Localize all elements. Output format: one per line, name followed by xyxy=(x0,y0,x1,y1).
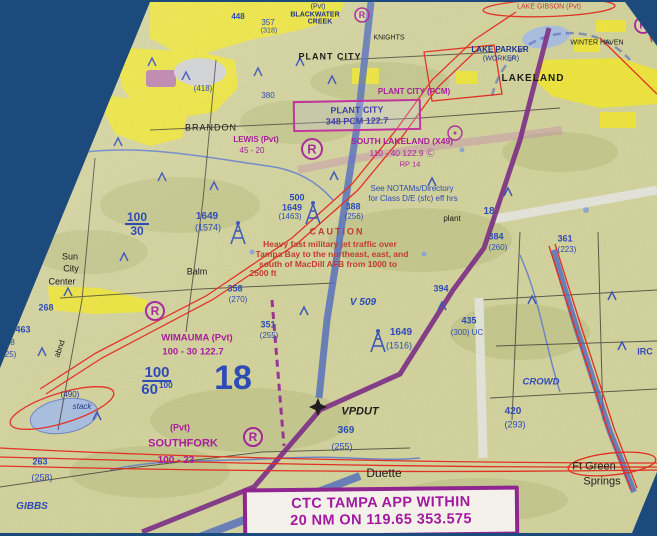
ctc-line-1: CTC TAMPA APP WITHIN xyxy=(291,494,470,513)
town-plant-small: plant xyxy=(443,215,460,223)
obstacle-388-agl: (256) xyxy=(345,213,364,221)
mef-100-60: 10060100 xyxy=(141,365,172,397)
town-duette: Duette xyxy=(366,467,401,479)
obstacle-384-agl: (260) xyxy=(489,244,508,252)
obstacle-420: 420 xyxy=(505,407,522,417)
lewis-data: 45 - 20 xyxy=(240,147,265,155)
obstacle-351-agl: (255) xyxy=(260,332,279,340)
obstacle-263-agl: (258) xyxy=(31,474,52,483)
obstacle-435-agl: (300) UC xyxy=(451,329,483,337)
obstacle-435: 435 xyxy=(461,317,476,326)
obstacle-358: 358 xyxy=(227,285,242,294)
obstacle-361: 361 xyxy=(557,235,572,244)
obstacle-361-agl: (223) xyxy=(558,246,577,254)
wimauma-data: 100 - 30 122.7 xyxy=(162,347,223,357)
town-sun-city-2: City xyxy=(63,265,79,274)
obstacle-1649-a-agl: (1574) xyxy=(195,224,221,233)
town-winter-haven: WINTER HAVEN xyxy=(570,40,623,47)
map-viewport: R R R R R (Pvt)BLACKWATERCREEK448357(318… xyxy=(0,0,657,536)
water-crowd: CROWD xyxy=(523,377,560,387)
wimauma-name: WIMAUMA (Pvt) xyxy=(161,333,232,343)
plant-city-pcm-label: PLANT CITY (PCM) xyxy=(378,88,450,96)
waypoint-vpdut-label: VPDUT xyxy=(341,407,378,418)
lake-parker-2: (WORKER) xyxy=(483,56,519,63)
obstacle-448: 448 xyxy=(231,13,244,21)
stack-note: stack xyxy=(73,403,92,411)
obstacle-351: 351 xyxy=(260,321,275,330)
pcm-box-freq: 348 PCM 122.7 xyxy=(326,115,389,126)
obstacle-490: (490) xyxy=(61,391,80,399)
obstacle-369-agl: (255) xyxy=(331,443,352,452)
obstacle-1649-c: 1649 xyxy=(390,328,412,338)
obstacle-1649-a: 1649 xyxy=(196,212,218,222)
lake-gibson-label: LAKE GIBSON (Pvt) xyxy=(517,4,581,11)
obstacle-1649-b-agl: (1463) xyxy=(278,213,301,221)
town-brandon: BRANDON xyxy=(185,124,237,133)
south-lakeland-name: SOUTH LAKELAND (X49) xyxy=(351,137,453,146)
obstacle-384: 384 xyxy=(488,233,503,242)
notam-note-1: See NOTAMs/Directory xyxy=(371,185,454,193)
mef-100-30: 10030 xyxy=(125,211,149,237)
lake-parker-1: LAKE PARKER xyxy=(471,46,528,54)
obstacle-1649-c-agl: (1516) xyxy=(386,342,412,351)
water-gibbs: GIBBS xyxy=(16,502,48,512)
southfork-pvt: (Pvt) xyxy=(170,424,190,433)
obstacle-500: 500 xyxy=(289,194,304,203)
southfork-name: SOUTHFORK xyxy=(148,439,218,450)
lewis-name: LEWIS (Pvt) xyxy=(233,136,278,144)
town-balm: Balm xyxy=(187,268,208,277)
obstacle-357: 357 xyxy=(261,19,274,27)
obstacle-348-agl: (325) xyxy=(0,351,16,359)
town-lakeland: LAKELAND xyxy=(502,74,565,84)
blackwater-creek-1: BLACKWATER xyxy=(290,12,339,19)
town-sun-city-1: Sun xyxy=(62,253,78,262)
town-ft-green-2: Springs xyxy=(583,477,620,488)
town-knights: KNIGHTS xyxy=(373,35,404,42)
southfork-data: 100 - 23 xyxy=(158,456,195,466)
obstacle-420-agl: (293) xyxy=(504,421,525,430)
plant-city-airport-databox: PLANT CITY 348 PCM 122.7 xyxy=(293,99,422,132)
ctc-line-2: 20 NM ON 119.65 353.575 xyxy=(290,511,472,530)
caution-line-5: 2500 ft xyxy=(250,269,277,278)
obstacle-394: 394 xyxy=(433,285,448,294)
obstacle-388: 388 xyxy=(345,203,360,212)
blackwater-pvt: (Pvt) xyxy=(311,4,326,11)
caution-line-3: Tampa Bay to the northeast, east, and xyxy=(256,250,409,259)
water-irc-fragment: IRC xyxy=(637,348,653,357)
obstacle-380: 380 xyxy=(261,92,274,100)
obstacle-348: 348 xyxy=(1,339,14,347)
notam-note-2: for Class D/E (sfc) eff hrs xyxy=(368,195,457,203)
town-ft-green-1: Ft Green xyxy=(572,462,615,473)
caution-line-2: Heavy fast military jet traffic over xyxy=(263,240,397,249)
mef-18-small: 18 xyxy=(483,207,494,217)
caution-line-4: south of MacDill AFB from 1000 to xyxy=(259,260,397,269)
obstacle-369: 369 xyxy=(338,426,355,436)
map-labels: (Pvt)BLACKWATERCREEK448357(318)PLANT CIT… xyxy=(0,0,657,536)
obstacle-268: 268 xyxy=(38,304,53,313)
south-lakeland-data: 110 - 40 122.9 Ⓒ xyxy=(369,149,434,158)
abandoned-note: abnd xyxy=(53,339,67,358)
obstacle-463: 463 xyxy=(15,326,30,335)
obstacle-358-agl: (270) xyxy=(229,296,248,304)
obstacle-357-agl: (318) xyxy=(261,28,277,35)
blackwater-creek-2: CREEK xyxy=(308,19,333,26)
town-sun-city-3: Center xyxy=(48,278,75,287)
obstacle-263: 263 xyxy=(32,458,47,467)
obstacle-418: (418) xyxy=(194,85,213,93)
town-plant-city: PLANT CITY xyxy=(299,53,362,62)
victor-airway-label: V 509 xyxy=(350,298,376,308)
ctc-tampa-approach-box: CTC TAMPA APP WITHIN 20 NM ON 119.65 353… xyxy=(243,486,520,536)
caution-title: CAUTION xyxy=(310,228,365,237)
mef-18-large: 18 xyxy=(214,361,252,395)
sectional-chart-canvas[interactable]: R R R R R (Pvt)BLACKWATERCREEK448357(318… xyxy=(0,0,657,536)
south-lakeland-rp: RP 14 xyxy=(400,160,421,168)
